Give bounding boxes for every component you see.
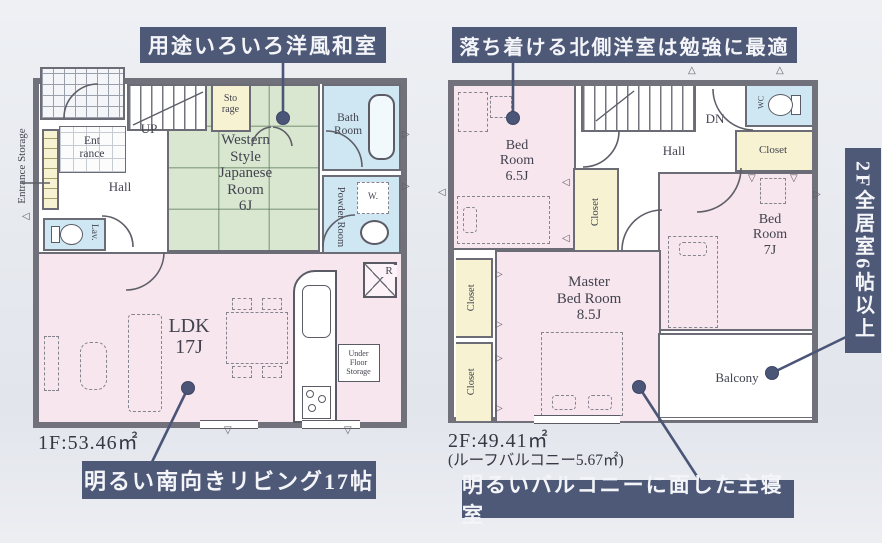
balcony: Balcony: [658, 333, 812, 421]
toilet-tank: [51, 226, 60, 243]
room-lavatory: Lav.: [43, 218, 106, 251]
pillow: [679, 242, 707, 256]
desk: [760, 178, 786, 204]
room-entrance-storage: [42, 129, 59, 210]
toilet-bowl: [768, 94, 793, 116]
kitchen-counter: [293, 270, 337, 423]
room-label: Bed Room 6.5J: [482, 138, 552, 184]
window-marker-icon: ▷: [813, 190, 821, 200]
coffee-table: [80, 342, 107, 390]
window-marker-icon: △: [776, 66, 784, 76]
closet-west-1: Closet: [456, 258, 493, 338]
room-label-hall: Hall: [95, 180, 145, 194]
tv-board: [44, 336, 59, 391]
callout-north-bedroom: 落ち着ける北側洋室は勉強に最適: [452, 27, 797, 63]
burner: [308, 404, 316, 412]
window-marker-icon: ◁: [22, 212, 30, 222]
room-master-bedroom: Master Bed Room 8.5J: [495, 250, 661, 421]
sink: [360, 220, 389, 245]
room-label: Bath Room: [326, 112, 370, 137]
chair: [262, 366, 282, 378]
area-label-2f: 2F:49.41㎡: [448, 430, 648, 452]
closet-west-2: Closet: [456, 342, 493, 421]
room-bath: Bath Room: [322, 84, 401, 171]
room-label: Western Style Japanese Room 6J: [177, 132, 314, 215]
callout-living: 明るい南向きリビング17帖: [82, 461, 376, 499]
closet-door-marker-icon: ▷: [495, 354, 503, 364]
room-label: Closet: [466, 270, 478, 326]
callout-japanese-room: 用途いろいろ洋風和室: [140, 27, 386, 63]
chair: [490, 96, 512, 118]
floorplan-1f: Western Style Japanese Room 6J UP Sto ra…: [33, 78, 407, 428]
stove: [302, 386, 331, 419]
window-marker-icon: ▷: [402, 130, 410, 140]
room-label: Ent rance: [66, 135, 118, 160]
window-marker-icon: ▷: [402, 182, 410, 192]
floorplan-image: Western Style Japanese Room 6J UP Sto ra…: [0, 0, 882, 543]
stairs-down: [581, 86, 696, 132]
toilet-bowl: [60, 224, 83, 245]
pillow: [552, 395, 576, 410]
room-label: Bed Room 7J: [738, 212, 802, 258]
room-bedroom-6-5: Bed Room 6.5J: [454, 86, 576, 250]
room-label: Sto rage: [213, 93, 248, 115]
washing-machine-label: W.: [358, 192, 388, 202]
closet-door-marker-icon: ▽: [748, 174, 756, 184]
closet-door-marker-icon: ◁: [562, 178, 570, 188]
bed: [541, 332, 623, 416]
room-label: WC: [758, 93, 767, 111]
chair: [232, 366, 252, 378]
bathtub: [368, 94, 395, 160]
stairs-down-label: DN: [700, 112, 730, 126]
stairs-up-label: UP: [129, 122, 169, 136]
room-powder: Powder Room W.: [322, 175, 401, 254]
closet-hall: Closet: [735, 130, 812, 172]
bed: [668, 236, 718, 328]
room-bedroom-7: Bed Room 7J: [658, 172, 812, 331]
callout-banner-2f: 2F全居室6帖以上: [845, 148, 881, 353]
closet-door-marker-icon: ▷: [495, 320, 503, 330]
closet-door-marker-icon: ▷: [495, 404, 503, 414]
closet-door-marker-icon: ▷: [495, 270, 503, 280]
area-note-2f: (ルーフバルコニー5.67㎡): [448, 452, 708, 469]
room-wc: WC: [745, 86, 812, 127]
entrance-porch: [40, 67, 125, 120]
room-label: Lav.: [89, 219, 99, 245]
closet-door-marker-icon: ◁: [562, 234, 570, 244]
sofa: [128, 314, 162, 412]
room-label: Powder Room: [334, 187, 346, 247]
room-entrance: Ent rance: [59, 126, 126, 173]
refrigerator-space: R: [363, 262, 397, 298]
under-floor-storage: Under Floor Storage: [338, 344, 380, 382]
window-marker-icon: ◁: [438, 188, 446, 198]
room-label: Closet: [737, 144, 809, 156]
pillow: [588, 395, 612, 410]
closet-door-marker-icon: ▽: [790, 174, 798, 184]
washing-machine: W.: [357, 182, 389, 214]
chair: [262, 298, 282, 310]
area-label-1f: 1F:53.46㎡: [38, 432, 218, 454]
burner: [318, 395, 326, 403]
room-label: Balcony: [700, 371, 774, 385]
under-floor-storage-label: Under Floor Storage: [339, 350, 378, 376]
desk: [458, 92, 488, 132]
callout-master-bedroom: 明るいバルコニーに面した主寝室: [462, 480, 794, 518]
room-label: Master Bed Room 8.5J: [539, 274, 639, 324]
floorplan-2f: Bed Room 6.5J DN Hall WC Closet Closet: [448, 80, 818, 423]
room-storage: Sto rage: [211, 84, 251, 132]
refrigerator-label: R: [381, 265, 397, 277]
chair: [232, 298, 252, 310]
dining-table: [226, 312, 288, 364]
room-label-hall-2f: Hall: [652, 144, 696, 158]
room-label: Closet: [466, 354, 478, 410]
closet-mid: Closet: [573, 168, 619, 253]
burner: [306, 390, 314, 398]
entrance-storage-label: Entrance Storage: [16, 116, 28, 216]
room-label: Closet: [589, 183, 601, 241]
room-ldk: LDK 17J Under Floor Storage R: [39, 252, 401, 422]
window: [534, 415, 620, 424]
bed: [457, 196, 550, 244]
window-marker-icon: ▽: [224, 426, 232, 436]
kitchen-sink: [302, 285, 331, 338]
pillow: [463, 207, 477, 233]
window-marker-icon: △: [688, 66, 696, 76]
window-marker-icon: ▽: [344, 426, 352, 436]
